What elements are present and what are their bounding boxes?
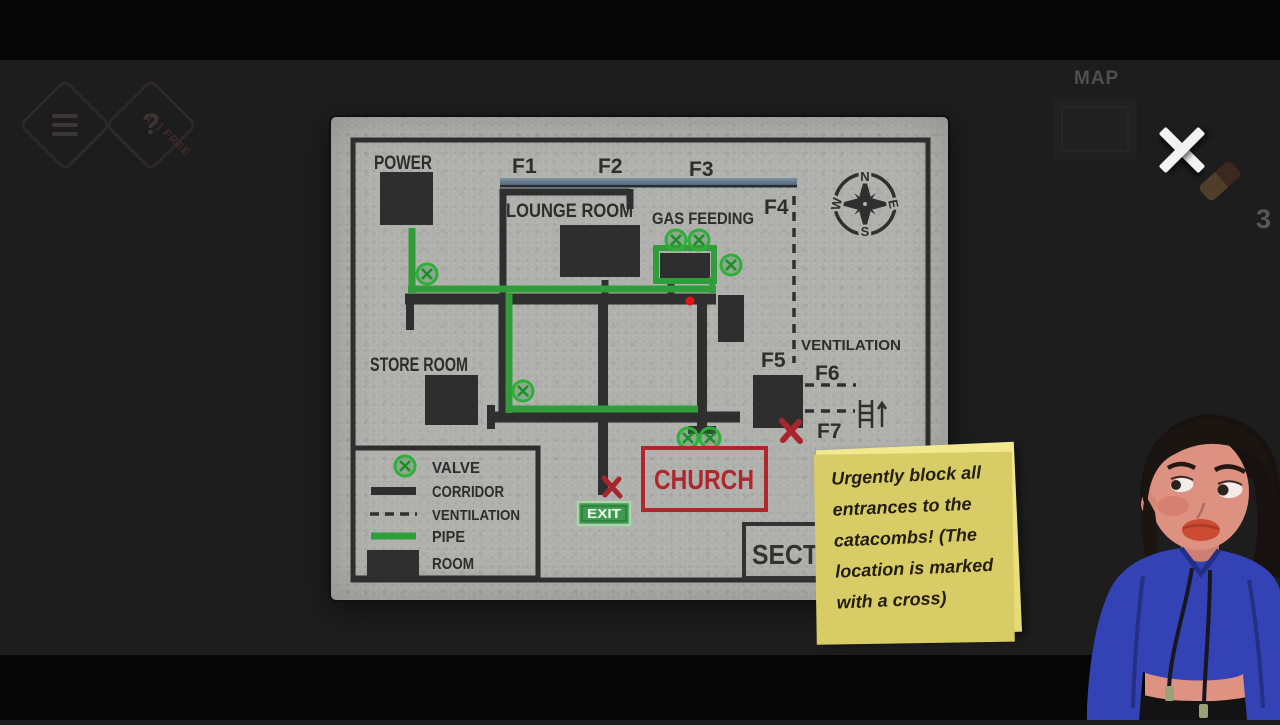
valve-icon[interactable]: [513, 381, 533, 401]
avatar-iris-left: [1171, 480, 1181, 490]
hamburger-icon: [35, 95, 95, 155]
hint-sticky-note: Urgently block all entrances to the cata…: [816, 442, 1022, 640]
compass-s: S: [861, 224, 870, 239]
compass-w: W: [828, 196, 845, 212]
mark-f4: F4: [764, 196, 789, 219]
avatar-iris-right: [1218, 485, 1229, 496]
valve-icon[interactable]: [700, 428, 720, 448]
map-slot-label: MAP: [1074, 68, 1119, 90]
valve-icon[interactable]: [666, 230, 686, 250]
metal-beam-edge: [500, 185, 797, 188]
legend-corridor-label: CORRIDOR: [432, 484, 504, 501]
valve-icon[interactable]: [417, 264, 437, 284]
map-thumbnail-sketch: [1061, 106, 1129, 152]
label-ventilation: VENTILATION: [801, 337, 901, 354]
mark-f6: F6: [815, 362, 840, 385]
map-item-thumbnail[interactable]: [1053, 98, 1137, 160]
legend-room-swatch: [367, 550, 419, 577]
label-lounge-room: LOUNGE ROOM: [506, 201, 633, 222]
red-dot-marker: [686, 297, 695, 306]
mark-f5: F5: [761, 349, 786, 372]
valve-icon[interactable]: [721, 255, 741, 275]
mark-f1: F1: [512, 155, 537, 178]
label-church: CHURCH: [654, 464, 754, 495]
player-avatar: [1083, 408, 1280, 720]
legend-room-label: ROOM: [432, 556, 474, 573]
avatar-lips: [1182, 519, 1220, 541]
menu-button[interactable]: [18, 78, 111, 171]
legend-ventilation-label: VENTILATION: [432, 507, 520, 524]
label-sect: SECT: [752, 539, 818, 570]
compass-rose: N S W E: [828, 169, 902, 239]
mark-f2: F2: [598, 155, 623, 178]
label-store-room: STORE ROOM: [370, 355, 468, 376]
hint-note-text: Urgently block all entrances to the cata…: [816, 442, 1021, 619]
compass-e: E: [885, 198, 902, 210]
legend-valve-label: VALVE: [432, 460, 480, 477]
top-letterbox-band: [0, 0, 1280, 60]
exit-sign: EXIT: [578, 502, 630, 525]
legend-valve-icon: [395, 456, 415, 476]
legend: VALVE CORRIDOR VENTILATION PIPE ROOM: [353, 448, 538, 578]
compass-n: N: [860, 169, 869, 184]
ladder-icon: [860, 400, 886, 428]
mark-f3: F3: [689, 158, 714, 181]
avatar-figure: [1083, 408, 1280, 720]
avatar-drawstring-tip: [1165, 686, 1174, 701]
label-exit: EXIT: [587, 506, 621, 521]
avatar-blush: [1157, 496, 1189, 516]
inventory-count: 3: [1256, 204, 1271, 235]
close-button[interactable]: [1152, 120, 1212, 180]
mark-f7: F7: [817, 420, 842, 443]
label-power: POWER: [374, 153, 432, 174]
label-gas-feeding: GAS FEEDING: [652, 209, 754, 228]
avatar-drawstring-tip: [1199, 704, 1208, 718]
valve-icon[interactable]: [678, 428, 698, 448]
legend-pipe-label: PIPE: [432, 529, 465, 546]
valve-icon[interactable]: [689, 230, 709, 250]
